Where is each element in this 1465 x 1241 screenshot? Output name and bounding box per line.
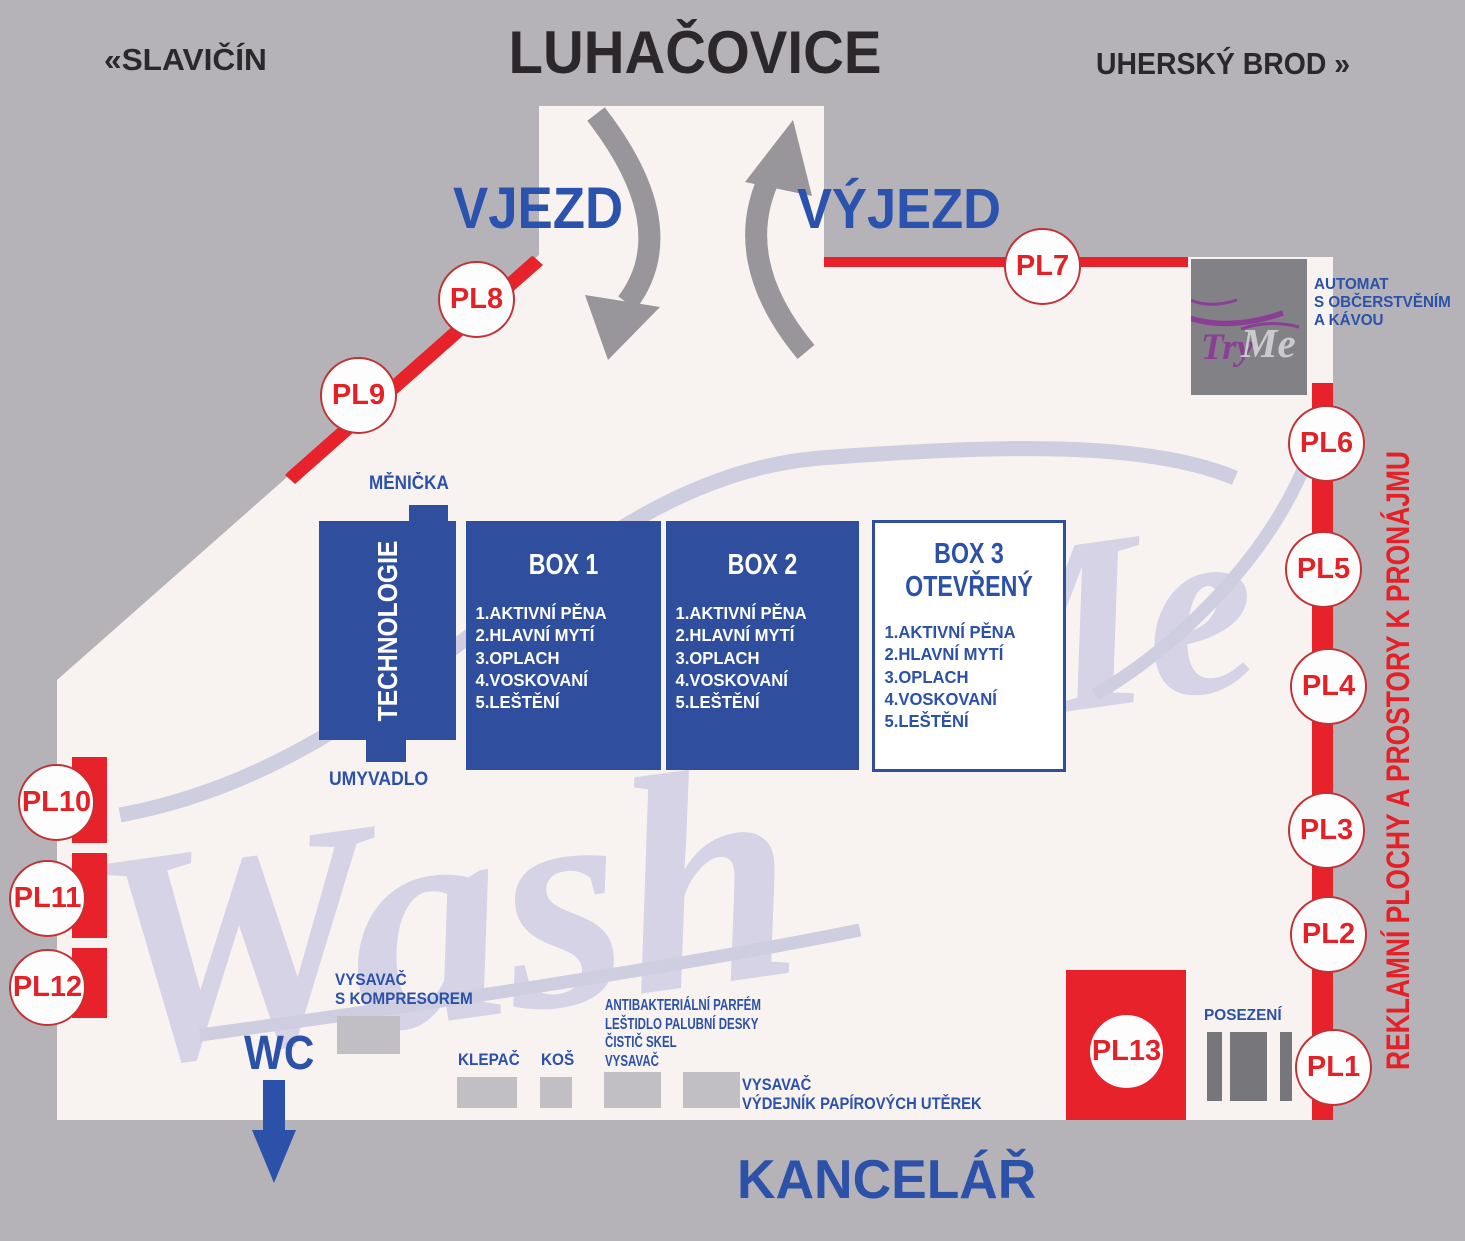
svg-text:Me: Me <box>1240 320 1296 366</box>
